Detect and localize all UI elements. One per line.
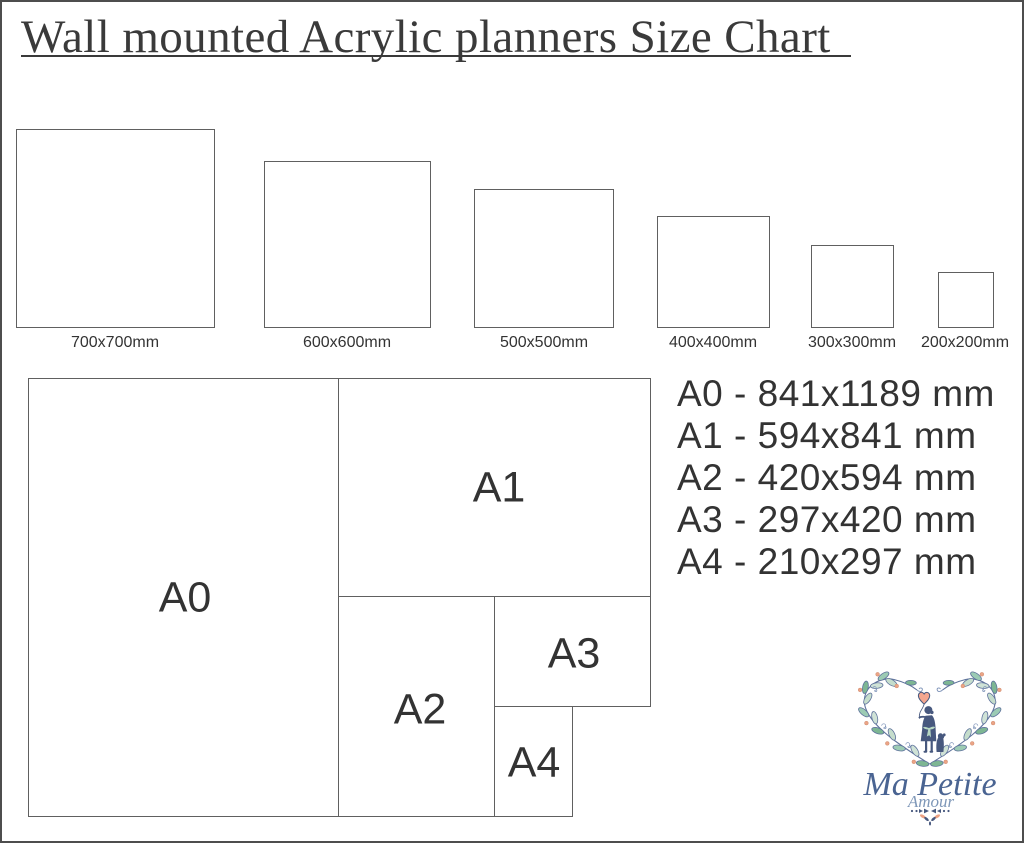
- svg-text:Amour: Amour: [907, 792, 955, 811]
